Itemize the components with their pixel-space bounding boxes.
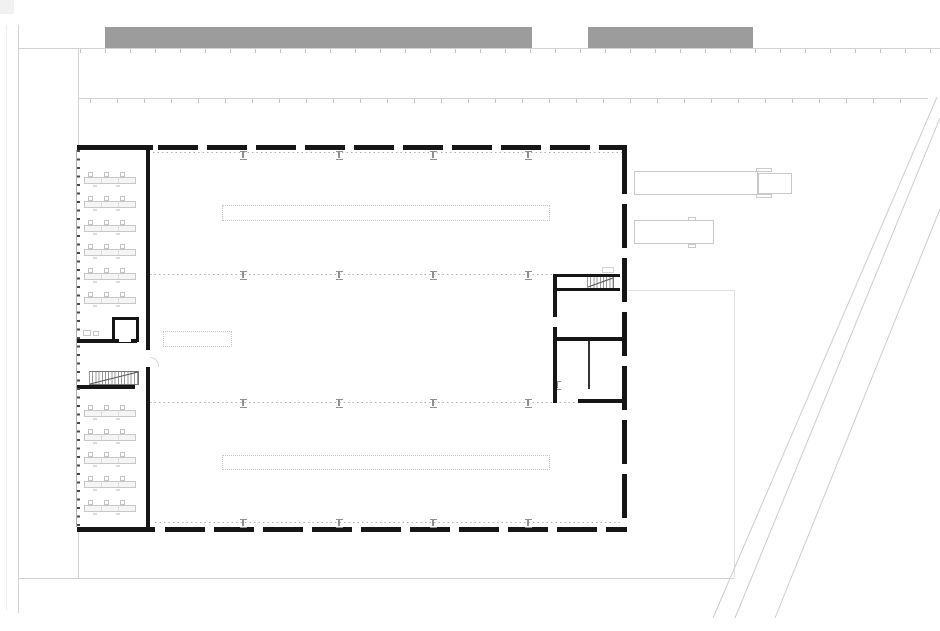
chair-mark	[116, 442, 120, 444]
semi-truck-outline-mirror	[756, 194, 772, 198]
desk-table	[84, 410, 136, 417]
steel-column-stem	[527, 520, 529, 526]
steel-column-stem	[338, 272, 340, 278]
desk-divider	[101, 410, 102, 416]
semi-truck-outline-trailer	[634, 171, 758, 195]
desk-divider	[118, 201, 119, 207]
chair	[88, 476, 93, 481]
steel-column-stem	[338, 152, 340, 158]
hall-stair	[587, 277, 614, 288]
desk-table	[84, 249, 136, 256]
steel-column-stem	[338, 400, 340, 406]
desk-row	[84, 196, 136, 211]
chair	[88, 244, 93, 249]
site-boundary-far-left	[6, 25, 7, 610]
grid-line-mid-lower	[150, 402, 578, 403]
steel-column	[240, 519, 247, 528]
steel-column-stem	[242, 520, 244, 526]
chair-mark	[93, 489, 97, 491]
chair-mark	[116, 281, 120, 283]
floor-plan-canvas	[0, 0, 940, 631]
chair-mark	[93, 185, 97, 187]
chair-mark	[93, 418, 97, 420]
desk-divider	[118, 434, 119, 440]
chair	[104, 244, 109, 249]
desk-divider	[101, 273, 102, 279]
chair	[88, 292, 93, 297]
corner-marker	[0, 0, 14, 14]
desk-table	[84, 505, 136, 512]
desk-divider	[118, 249, 119, 255]
chair	[88, 268, 93, 273]
east-wall-dashed	[622, 150, 627, 532]
van-outline-body	[634, 220, 714, 244]
chair	[104, 292, 109, 297]
desk-divider	[118, 273, 119, 279]
steel-column	[240, 399, 247, 408]
desk-divider	[101, 297, 102, 303]
desk-row	[84, 220, 136, 235]
desk-row	[84, 292, 136, 307]
grid-line-north	[153, 152, 622, 153]
office-partition-wall-lower	[146, 367, 151, 527]
desk-table	[84, 177, 136, 184]
desk-divider	[101, 201, 102, 207]
desk-divider	[118, 177, 119, 183]
cabinet	[83, 330, 91, 336]
chair-mark	[116, 233, 120, 235]
steel-column	[430, 151, 437, 160]
desk-row	[84, 172, 136, 187]
steel-column	[336, 519, 343, 528]
desk-divider	[118, 297, 119, 303]
desk-row	[84, 405, 136, 420]
chair-mark	[116, 185, 120, 187]
desk-table	[84, 297, 136, 304]
steel-column	[430, 271, 437, 280]
chair	[120, 476, 125, 481]
desk-row	[84, 429, 136, 444]
site-boundary-left	[18, 25, 19, 613]
chair	[88, 452, 93, 457]
desk-divider	[101, 177, 102, 183]
steel-column-stem	[432, 152, 434, 158]
chair-mark	[116, 209, 120, 211]
north-wall-west-segment	[77, 145, 153, 150]
steel-column	[525, 271, 532, 280]
desk-divider	[118, 457, 119, 463]
steel-column-stem	[527, 152, 529, 158]
workbench-outline	[163, 331, 232, 347]
desk-divider	[101, 434, 102, 440]
room-thin-partition	[588, 341, 590, 389]
desk-row	[84, 500, 136, 515]
steel-column	[430, 399, 437, 408]
steel-column-stem	[242, 152, 244, 158]
steel-column-stem	[432, 400, 434, 406]
desk-divider	[101, 505, 102, 511]
chair	[120, 429, 125, 434]
chair-mark	[116, 418, 120, 420]
site-diagonal-overlay	[0, 0, 940, 631]
chair	[120, 220, 125, 225]
north-wall-dashed	[158, 145, 627, 150]
steel-column	[336, 151, 343, 160]
stair-landing	[602, 267, 614, 273]
chair	[120, 268, 125, 273]
desk-divider	[118, 505, 119, 511]
steel-column	[525, 151, 532, 160]
steel-column	[525, 519, 532, 528]
chair-mark	[93, 233, 97, 235]
chair-mark	[93, 257, 97, 259]
room-south-wall	[578, 399, 627, 403]
yard-boundary-bottom	[18, 578, 734, 579]
desk-table	[84, 457, 136, 464]
yard-boundary-right	[734, 290, 735, 578]
desk-table	[84, 481, 136, 488]
desk-divider	[118, 481, 119, 487]
fence-posts-upper	[80, 49, 936, 53]
desk-row	[84, 452, 136, 467]
office-stair-wall	[77, 385, 135, 389]
desk-row	[84, 268, 136, 283]
chair	[120, 244, 125, 249]
semi-truck-outline-cab	[758, 173, 792, 194]
chair	[88, 196, 93, 201]
chair	[120, 172, 125, 177]
desk-divider	[101, 249, 102, 255]
chair	[120, 196, 125, 201]
service-room-door-gap	[119, 339, 131, 342]
chair	[104, 196, 109, 201]
steel-column	[430, 519, 437, 528]
canopy-bar-left	[105, 27, 532, 49]
chair-mark	[93, 513, 97, 515]
desk-row	[84, 476, 136, 491]
chair-mark	[93, 305, 97, 307]
desk-table	[84, 273, 136, 280]
van-outline-mirror	[688, 217, 696, 221]
chair-mark	[93, 442, 97, 444]
semi-truck-outline-mirror	[756, 168, 772, 172]
desk-row	[84, 244, 136, 259]
crane-runway-south	[222, 455, 550, 470]
crane-runway-north	[222, 205, 550, 221]
chair	[104, 268, 109, 273]
steel-column-stem	[432, 272, 434, 278]
steel-column	[525, 399, 532, 408]
steel-column-stem	[338, 520, 340, 526]
room-divider-wall	[553, 337, 627, 341]
yard-boundary-top	[628, 290, 734, 291]
grid-line-south	[155, 522, 622, 523]
cabinet	[93, 331, 99, 336]
desk-divider	[118, 410, 119, 416]
south-wall-west-segment	[77, 527, 155, 532]
chair	[88, 220, 93, 225]
desk-divider	[101, 481, 102, 487]
chair	[104, 429, 109, 434]
desk-table	[84, 201, 136, 208]
chair	[120, 292, 125, 297]
fence-posts-lower	[90, 99, 926, 103]
facade-extension-lower	[78, 532, 79, 578]
chair	[120, 500, 125, 505]
van-outline-mirror	[688, 244, 696, 248]
stairroom-wall-below-stair	[553, 288, 620, 291]
chair-mark	[93, 209, 97, 211]
grid-line-mid-upper	[150, 274, 553, 275]
chair	[120, 452, 125, 457]
steel-column-stem	[242, 272, 244, 278]
desk-divider	[101, 457, 102, 463]
steel-column	[240, 151, 247, 160]
office-stair	[89, 371, 139, 385]
chair-mark	[116, 489, 120, 491]
chair	[104, 500, 109, 505]
chair-mark	[93, 281, 97, 283]
south-wall-dashed	[165, 527, 627, 532]
facade-extension-upper	[78, 48, 79, 145]
chair	[88, 405, 93, 410]
stairroom-wall-west-upper	[553, 274, 557, 318]
office-partition-wall-upper	[146, 148, 151, 350]
road-edge-3	[775, 209, 940, 618]
desk-divider	[101, 225, 102, 231]
chair	[104, 172, 109, 177]
chair	[104, 452, 109, 457]
chair-mark	[93, 465, 97, 467]
canopy-bar-right	[588, 27, 753, 49]
steel-column	[336, 271, 343, 280]
chair	[120, 405, 125, 410]
chair	[104, 476, 109, 481]
desk-table	[84, 434, 136, 441]
desk-table	[84, 225, 136, 232]
steel-column-stem	[527, 272, 529, 278]
chair-mark	[116, 465, 120, 467]
chair	[104, 405, 109, 410]
steel-column	[240, 271, 247, 280]
west-glazed-facade	[76, 150, 80, 527]
chair	[104, 220, 109, 225]
desk-divider	[118, 225, 119, 231]
chair	[88, 429, 93, 434]
chair-mark	[116, 513, 120, 515]
door-swing	[150, 357, 159, 367]
chair	[88, 172, 93, 177]
steel-column-stem	[432, 520, 434, 526]
steel-column-stem	[242, 400, 244, 406]
chair	[88, 500, 93, 505]
steel-column-stem	[527, 400, 529, 406]
chair-mark	[116, 257, 120, 259]
chair-mark	[116, 305, 120, 307]
steel-column	[336, 399, 343, 408]
